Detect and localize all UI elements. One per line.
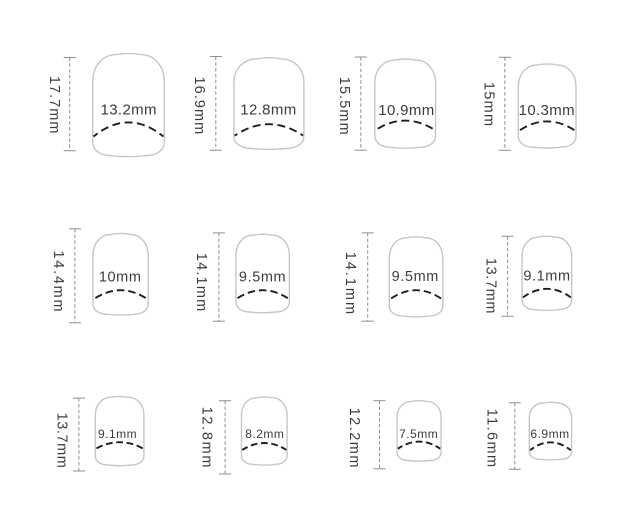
svg-text:17.7mm: 17.7mm — [46, 76, 62, 135]
svg-text:9.5mm: 9.5mm — [239, 269, 286, 285]
svg-text:12.2mm: 12.2mm — [346, 408, 362, 469]
svg-text:15mm: 15mm — [480, 82, 496, 127]
svg-text:14.1mm: 14.1mm — [193, 253, 209, 313]
svg-text:8.2mm: 8.2mm — [245, 427, 284, 441]
svg-text:9.5mm: 9.5mm — [392, 269, 439, 285]
svg-text:7.5mm: 7.5mm — [399, 427, 438, 441]
svg-text:9.1mm: 9.1mm — [98, 427, 137, 441]
svg-text:10.9mm: 10.9mm — [378, 102, 434, 119]
svg-text:6.9mm: 6.9mm — [530, 427, 569, 441]
svg-text:15.5mm: 15.5mm — [336, 77, 352, 136]
svg-text:12.8mm: 12.8mm — [199, 407, 215, 470]
svg-text:14.1mm: 14.1mm — [342, 252, 358, 316]
svg-text:13.7mm: 13.7mm — [53, 413, 69, 469]
svg-text:11.6mm: 11.6mm — [483, 409, 499, 469]
svg-text:16.9mm: 16.9mm — [191, 77, 207, 136]
svg-text:14.4mm: 14.4mm — [50, 250, 66, 313]
svg-text:12.8mm: 12.8mm — [240, 101, 296, 118]
svg-text:13.2mm: 13.2mm — [101, 101, 157, 118]
svg-text:9.1mm: 9.1mm — [523, 268, 570, 284]
svg-text:13.7mm: 13.7mm — [482, 258, 498, 314]
svg-text:10mm: 10mm — [99, 269, 142, 285]
svg-text:10.3mm: 10.3mm — [519, 102, 575, 119]
